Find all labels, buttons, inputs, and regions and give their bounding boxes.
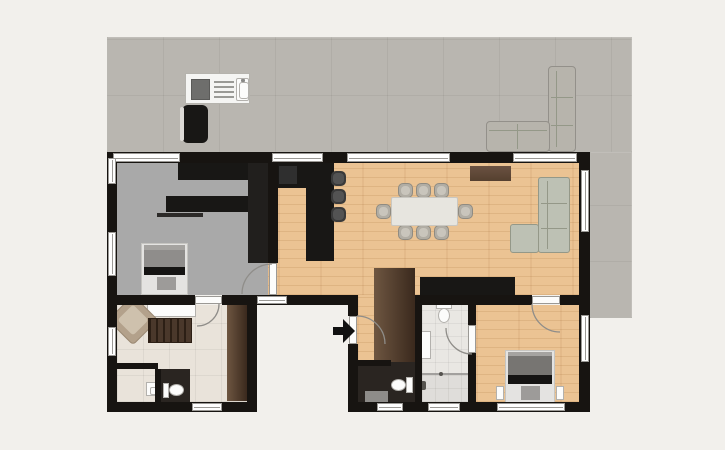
wall-left: [107, 152, 117, 412]
single-bed: [141, 243, 188, 295]
grill-grate-icon: [214, 81, 234, 98]
grill-plate-icon: [191, 79, 210, 100]
terrace-slab-right: [590, 152, 632, 318]
dining-chair: [398, 183, 413, 198]
desk-shelf: [157, 213, 203, 217]
dining-chair: [434, 225, 449, 240]
window-left-2: [108, 232, 116, 276]
wall-interior-c2: [560, 295, 590, 305]
wall-beige-partition-h: [117, 363, 158, 369]
wall-beige-partition-v: [155, 369, 161, 412]
beige-wc-toilet-bowl: [169, 384, 184, 396]
window-top-2: [272, 153, 323, 162]
kitchen-island: [306, 188, 334, 261]
double-bed: [505, 350, 555, 403]
double-bed-pad: [521, 386, 540, 400]
window-bottom-beige: [192, 403, 222, 411]
nightstand-right: [556, 386, 564, 400]
window-left-1: [108, 158, 116, 184]
kitchen-counter: [276, 163, 334, 188]
dining-chair: [398, 225, 413, 240]
hall-wc-mat: [365, 391, 388, 402]
window-living-south: [257, 296, 287, 304]
wardrobe-top: [178, 163, 248, 180]
hall-wardrobe: [374, 268, 415, 362]
wall-bath-west: [415, 305, 422, 412]
window-right-1: [581, 170, 589, 232]
outdoor-grill-unit: [185, 73, 250, 104]
bathroom-toilet-bowl: [438, 308, 450, 323]
single-bed-duvet: [144, 245, 185, 267]
bar-stool-1: [331, 171, 346, 186]
nightstand-left: [496, 386, 504, 400]
door-leaf-bedroom: [532, 296, 560, 304]
dining-chair: [416, 225, 431, 240]
hall-wc-toilet-tank: [406, 377, 413, 393]
wall-interior-b2: [222, 295, 357, 305]
window-bottom-bedroom: [497, 403, 565, 411]
door-leaf-bathroom: [468, 325, 476, 353]
window-left-3: [108, 327, 116, 356]
desk: [166, 196, 248, 212]
floor-plan-canvas: [0, 0, 725, 450]
terrace-sofa-horizontal: [486, 121, 550, 152]
dining-chair: [416, 183, 431, 198]
shower-floor: [422, 375, 468, 402]
door-leaf-beige-room: [195, 296, 222, 304]
window-top-4: [513, 153, 577, 162]
living-sofa-vertical: [538, 177, 570, 253]
terrace-sofa-vertical: [548, 66, 576, 152]
faucet-icon: [241, 79, 245, 82]
wall-bottom-left: [107, 402, 257, 412]
window-bottom-bath: [428, 403, 460, 411]
wall-bath-east-1: [468, 305, 476, 325]
window-top-3: [347, 153, 450, 162]
entry-door-leaf: [349, 316, 357, 344]
door-leaf-gray-room: [269, 263, 277, 295]
tv-lowboard: [420, 277, 515, 295]
window-bottom-wc: [377, 403, 403, 411]
wall-hall-west-1: [348, 295, 358, 316]
wall-interior-vertical-a: [268, 163, 278, 263]
window-top-1: [113, 153, 180, 162]
sideboard-brown: [470, 166, 511, 181]
outdoor-sink: [236, 78, 249, 101]
dining-chair: [458, 204, 473, 219]
single-bed-pad: [157, 277, 176, 290]
living-sofa-chaise: [510, 224, 539, 253]
wall-interior-b1: [117, 295, 195, 305]
wall-hall-wc-partition: [355, 360, 391, 366]
dining-table: [391, 197, 458, 226]
bar-stool-3: [331, 207, 346, 222]
hall-wc-toilet-bowl: [391, 379, 406, 391]
wall-hall-west-2: [348, 344, 358, 412]
wardrobe-side: [248, 163, 268, 263]
outdoor-barrel: [182, 105, 208, 143]
wardrobe-beige-room: [227, 305, 247, 401]
wall-beige-east: [247, 295, 257, 412]
wall-interior-c1: [415, 295, 532, 305]
dining-chair: [434, 183, 449, 198]
bar-stool-2: [331, 189, 346, 204]
room-top-left-floor: [117, 163, 268, 295]
double-bed-duvet: [508, 352, 552, 375]
bathroom-vanity: [421, 331, 431, 359]
dresser-slatted: [148, 318, 192, 343]
wall-bath-east-2: [468, 353, 476, 412]
dining-chair: [376, 204, 391, 219]
window-right-2: [581, 315, 589, 362]
